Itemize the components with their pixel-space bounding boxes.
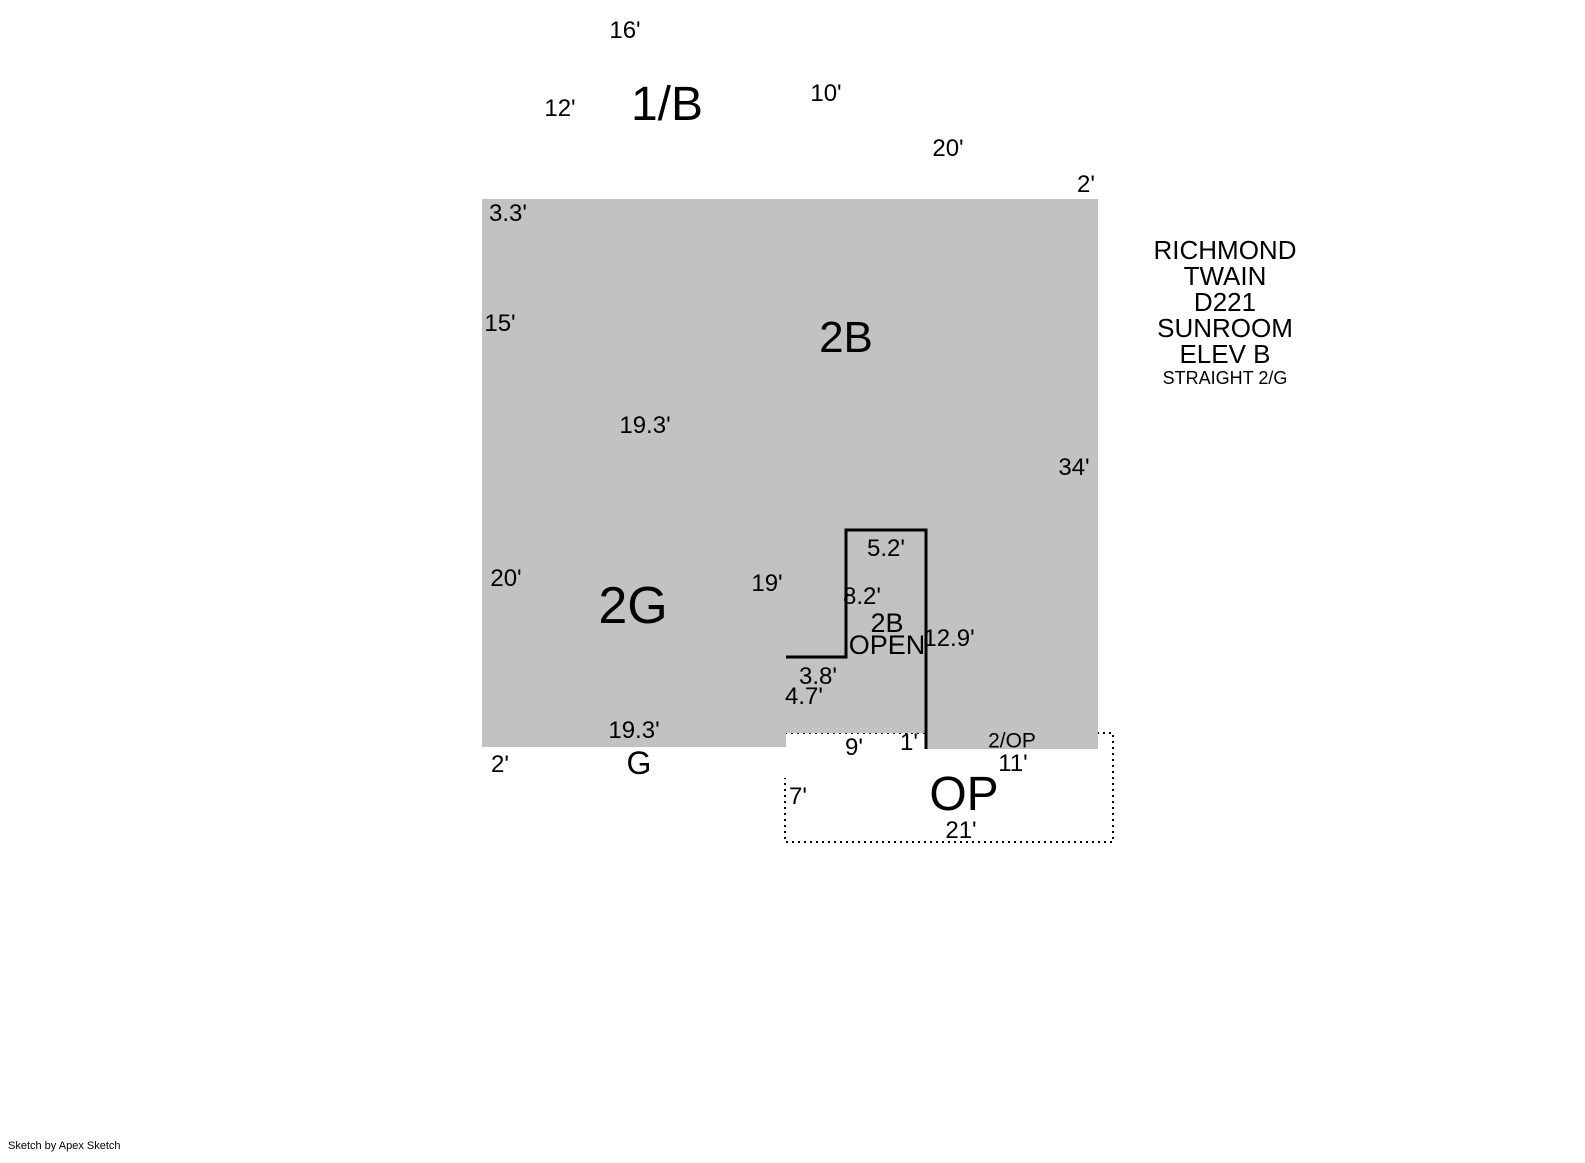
dim-right-34: 34' [1058, 456, 1089, 480]
footer-credit: Sketch by Apex Sketch [8, 1140, 121, 1152]
dim-strip-left-2: 2' [491, 753, 509, 777]
dim-porch-left-7: 7' [789, 785, 807, 809]
dim-porch-11: 11' [998, 752, 1028, 776]
title-line-elevation: ELEV B [1075, 341, 1375, 367]
title-line-unit: D221 [1075, 289, 1375, 315]
area-label-op: OP [929, 771, 998, 819]
area-label-2b: 2B [819, 316, 873, 360]
dim-step-4-7: 4.7' [785, 685, 823, 709]
dim-garage-top-19-3: 19.3' [619, 414, 670, 438]
dim-offset-3-3: 3.3' [489, 202, 527, 226]
dim-garage-left-20: 20' [490, 567, 521, 591]
dim-garage-right-19: 19' [751, 572, 782, 596]
area-label-2b-open-line2: OPEN [849, 634, 926, 656]
dim-porch-1: 1' [900, 731, 918, 755]
floor-plan-outlines [0, 0, 1585, 1163]
dim-top-20: 20' [932, 137, 963, 161]
floor-plan-sketch: 1/B 2B 2G G OP 2/OP 2B OPEN 16' 12' 10' … [0, 0, 1585, 1163]
area-label-1b: 1/B [631, 81, 703, 129]
dim-porch-bottom-21: 21' [945, 819, 976, 843]
area-label-2b-open: 2B OPEN [849, 612, 926, 656]
dim-notch-left-8-2: 8.2' [843, 585, 881, 609]
dim-left-12: 12' [544, 97, 575, 121]
dim-right-2: 2' [1077, 173, 1095, 197]
dim-top-16: 16' [609, 19, 640, 43]
area-label-g: G [627, 747, 652, 779]
title-line-series: TWAIN [1075, 263, 1375, 289]
area-label-2op: 2/OP [988, 731, 1036, 752]
dim-right-10: 10' [810, 82, 841, 106]
dim-notch-right-12-9: 12.9' [923, 627, 974, 651]
title-block: RICHMOND TWAIN D221 SUNROOM ELEV B STRAI… [1075, 237, 1375, 389]
dim-notch-top-5-2: 5.2' [867, 537, 905, 561]
dim-garage-bottom-19-3: 19.3' [608, 719, 659, 743]
title-line-model: RICHMOND [1075, 237, 1375, 263]
dim-left-15: 15' [484, 312, 515, 336]
area-label-2g: 2G [598, 580, 667, 632]
dim-porch-9: 9' [845, 736, 863, 760]
title-line-sunroom: SUNROOM [1075, 315, 1375, 341]
title-subtitle: STRAIGHT 2/G [1075, 367, 1375, 389]
